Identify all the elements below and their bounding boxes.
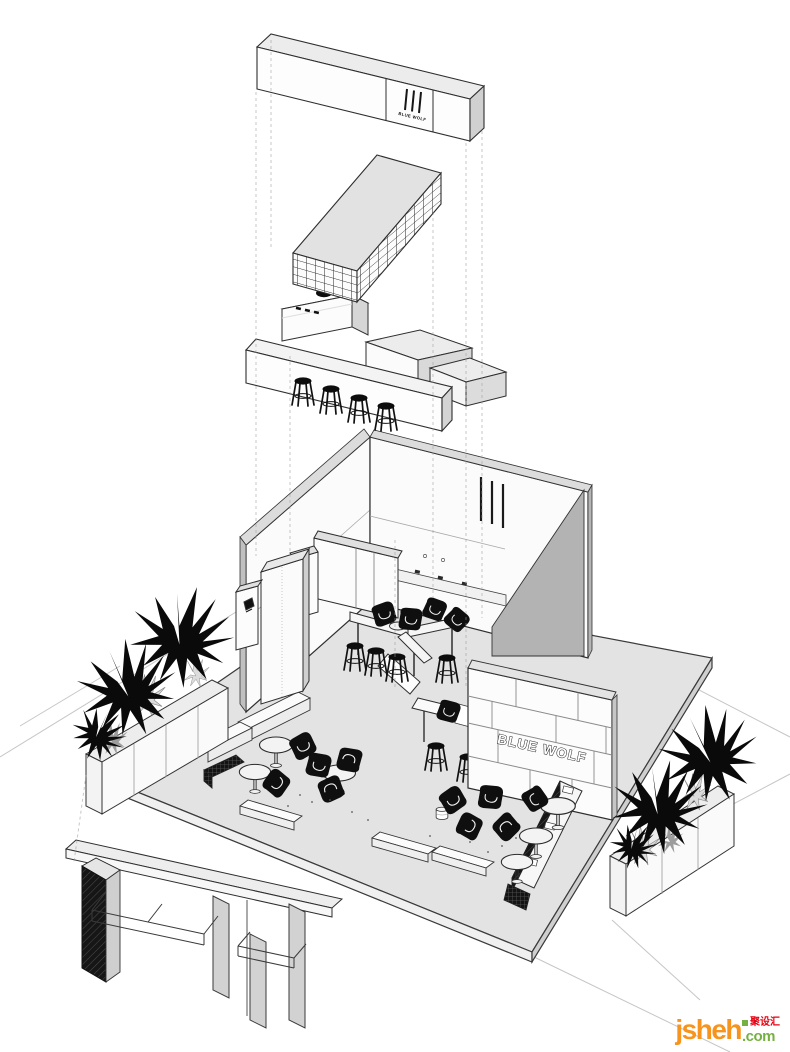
exploded-axonometric-diagram: BLUE WOLF [0, 0, 790, 1052]
watermark-domain: .com [742, 1029, 775, 1044]
ceiling-grid [293, 155, 441, 302]
badge-chip-icon [742, 1020, 748, 1026]
tall-cabinet [261, 559, 303, 704]
diagram-canvas: BLUE WOLF [0, 0, 790, 1052]
vertical-fins [213, 896, 305, 1028]
watermark-brand: jsheh [675, 1016, 741, 1044]
watermark-badge: 聚设汇 [750, 1018, 780, 1028]
signage-box: BLUE WOLF [257, 34, 484, 141]
hatched-column [82, 866, 106, 982]
watermark-badge-row: 聚设汇 [742, 1018, 780, 1028]
watermark-link[interactable]: jsheh 聚设汇 .com [675, 1016, 780, 1044]
bar-station [246, 289, 506, 431]
